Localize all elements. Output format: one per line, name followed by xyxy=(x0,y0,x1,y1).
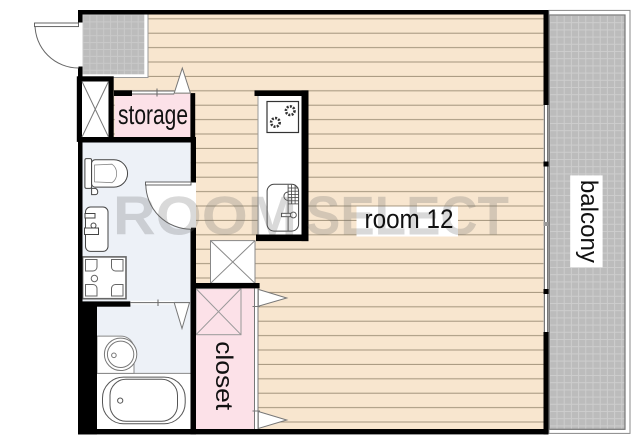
svg-text:balcony: balcony xyxy=(575,180,602,263)
svg-text:ROOM: ROOM xyxy=(113,186,297,247)
svg-text:room 12: room 12 xyxy=(365,204,454,234)
svg-text:closet: closet xyxy=(210,341,237,410)
svg-text:storage: storage xyxy=(118,99,188,130)
